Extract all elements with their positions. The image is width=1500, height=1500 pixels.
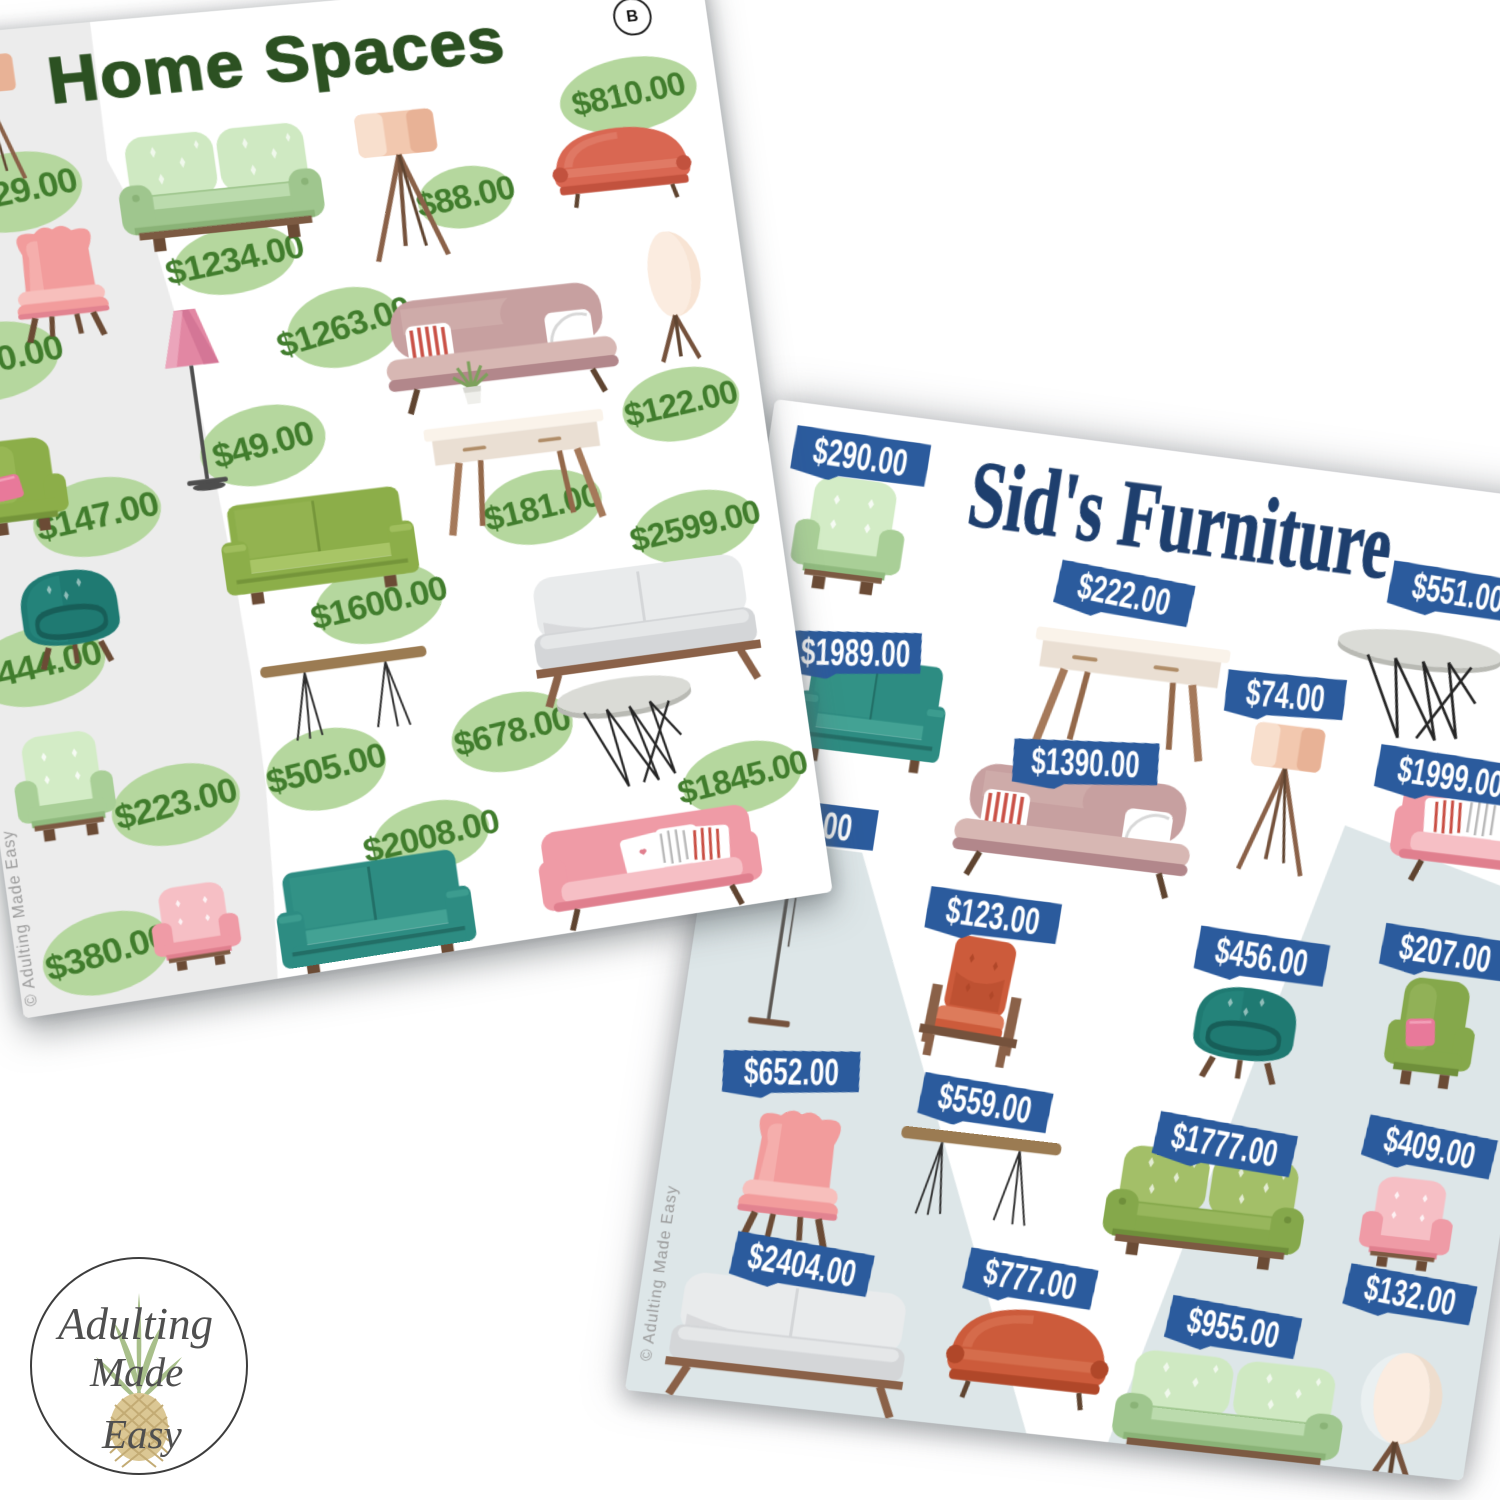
svg-text:Made: Made <box>89 1349 183 1395</box>
svg-text:Easy: Easy <box>101 1411 183 1457</box>
svg-text:Adulting: Adulting <box>55 1299 213 1349</box>
